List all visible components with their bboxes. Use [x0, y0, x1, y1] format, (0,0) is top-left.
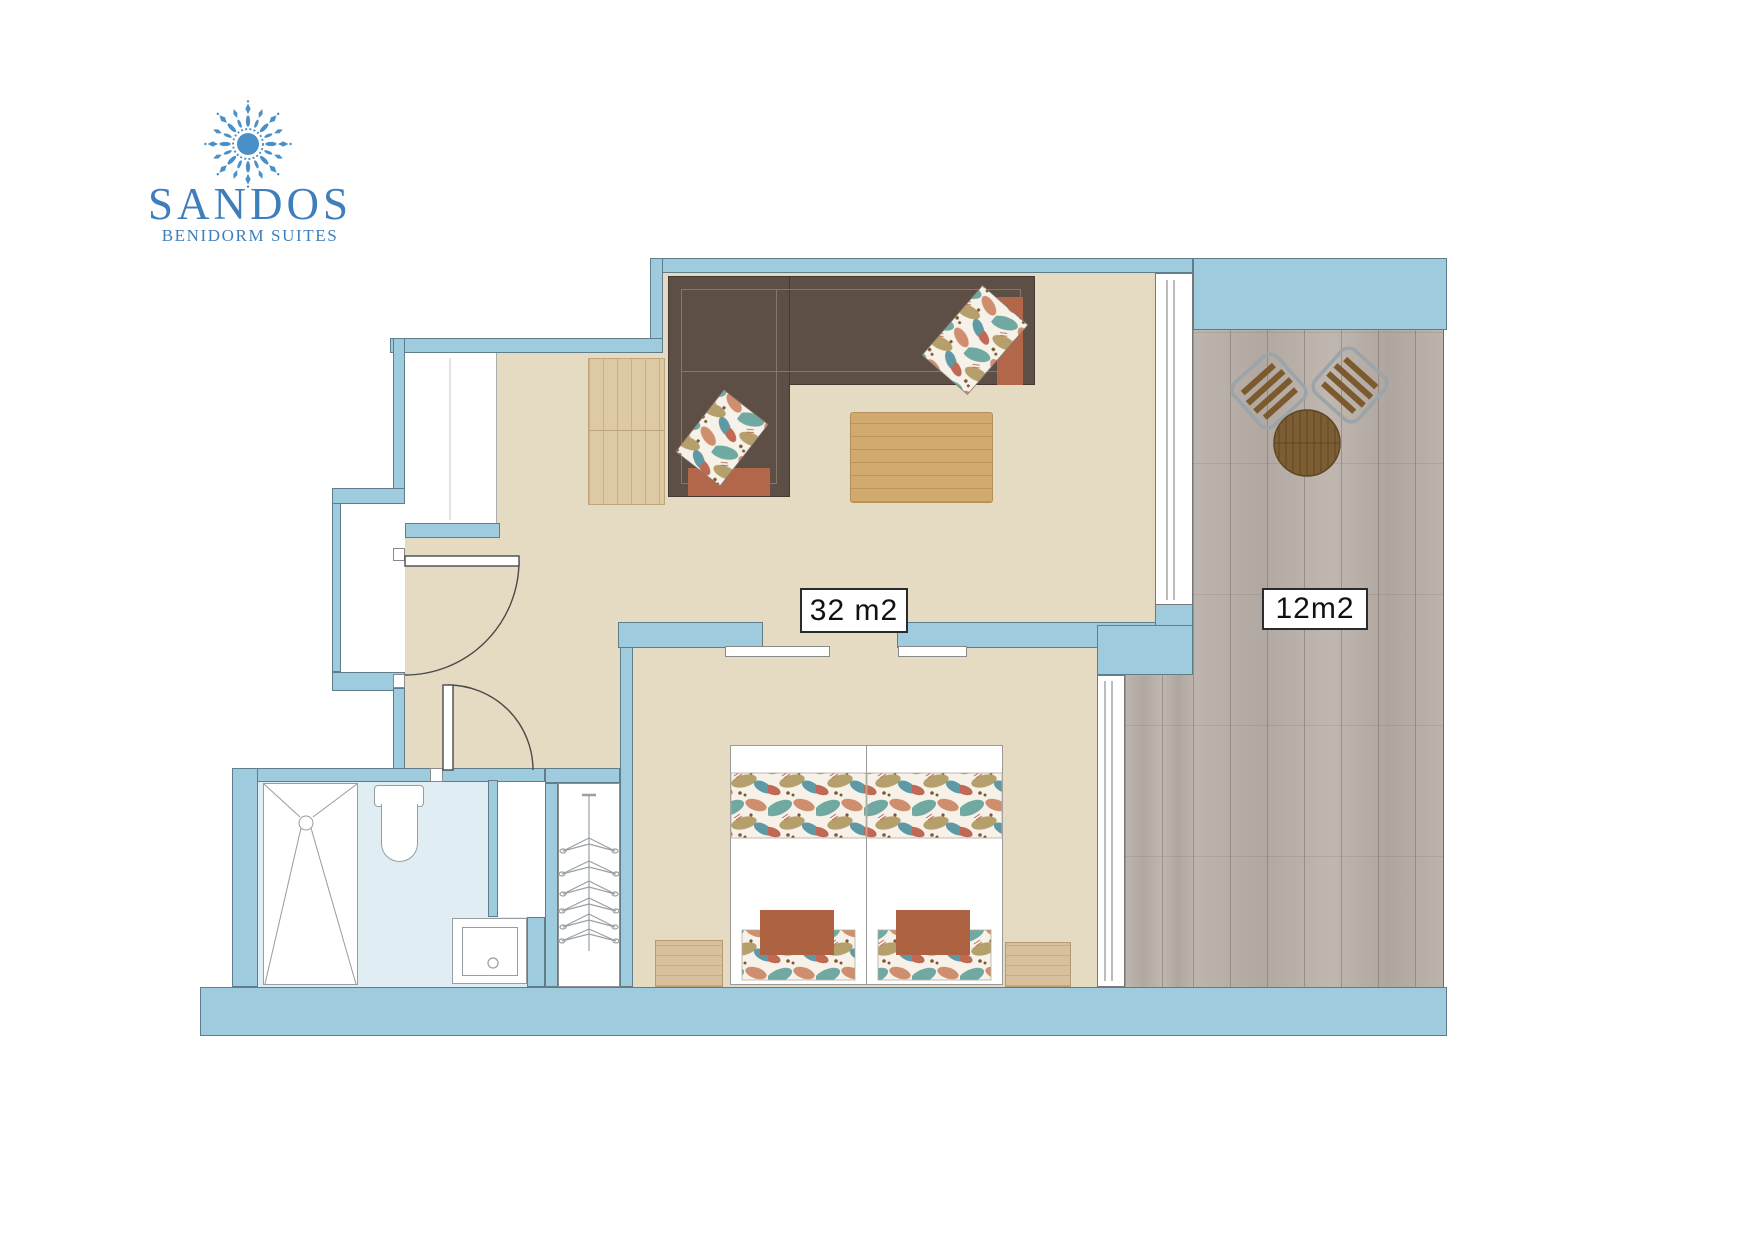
wall-bottom-exterior: [200, 987, 1447, 1036]
sofa-armrest-cushion: [997, 297, 1023, 385]
terrace-area-label-text: 12m2: [1275, 592, 1354, 626]
wall-sink-side: [527, 917, 545, 987]
sofa-chaise-cushion-line: [681, 289, 777, 484]
bedroom-opening-threshold-right: [898, 646, 967, 657]
floor-plan-page: SANDOS BENIDORM SUITES: [0, 0, 1754, 1240]
wall-slider-pier-lower: [1097, 625, 1193, 675]
bathroom-door-jamb: [430, 768, 443, 782]
living-area-label-text: 32 m2: [810, 594, 898, 628]
shower-tray: [263, 783, 358, 985]
brand-subtitle: BENIDORM SUITES: [110, 226, 390, 246]
terrace-area-label: 12m2: [1262, 588, 1368, 630]
wall-bathroom-left: [232, 768, 258, 987]
toilet-bowl: [381, 804, 418, 862]
brand-name: SANDOS: [110, 178, 390, 230]
terrace-edge-line: [1443, 330, 1444, 988]
nightstand-right: [1005, 942, 1071, 987]
hall-door-jamb: [393, 674, 405, 688]
wall-closet-top: [545, 768, 620, 783]
window-recess: [405, 353, 497, 525]
wall-top-terrace: [1193, 258, 1447, 330]
entry-door-jamb: [393, 548, 405, 561]
bedroom-terrace-sliding-door: [1097, 675, 1125, 987]
terrace-floor-lower: [1125, 663, 1193, 988]
closet-interior: [558, 783, 620, 987]
bed-right-accent-pillow: [896, 910, 970, 955]
living-area-label: 32 m2: [800, 588, 908, 633]
wall-window-sill: [405, 523, 500, 538]
bed-left-accent-pillow: [760, 910, 834, 955]
living-terrace-sliding-door: [1155, 273, 1193, 605]
wall-bedroom-north-left: [618, 622, 763, 648]
sink-basin: [462, 927, 518, 976]
sunburst-mandala-icon: [204, 100, 292, 188]
console-desk-divider: [589, 430, 664, 431]
nightstand-left: [655, 940, 723, 987]
wall-bedroom-divider: [620, 622, 633, 987]
coffee-table: [850, 412, 993, 503]
wall-bathroom-top: [232, 768, 545, 782]
hallway-floor: [405, 648, 620, 770]
brand-logo: SANDOS BENIDORM SUITES: [110, 90, 390, 260]
terrace-floor: [1193, 330, 1443, 988]
sofa-seat-cushion: [688, 468, 770, 496]
wall-entry-outer: [332, 503, 341, 672]
wall-top-living: [653, 258, 1193, 273]
entry-recess: [332, 503, 405, 672]
console-desk: [588, 358, 665, 505]
wall-bathroom-right: [488, 780, 498, 917]
wall-stub-upper: [332, 488, 405, 504]
wall-left-lower: [393, 688, 405, 780]
wall-top-left: [390, 338, 663, 353]
wall-left-upper: [393, 338, 405, 503]
wall-closet-left: [545, 783, 558, 987]
bedroom-opening-threshold-left: [725, 646, 830, 657]
